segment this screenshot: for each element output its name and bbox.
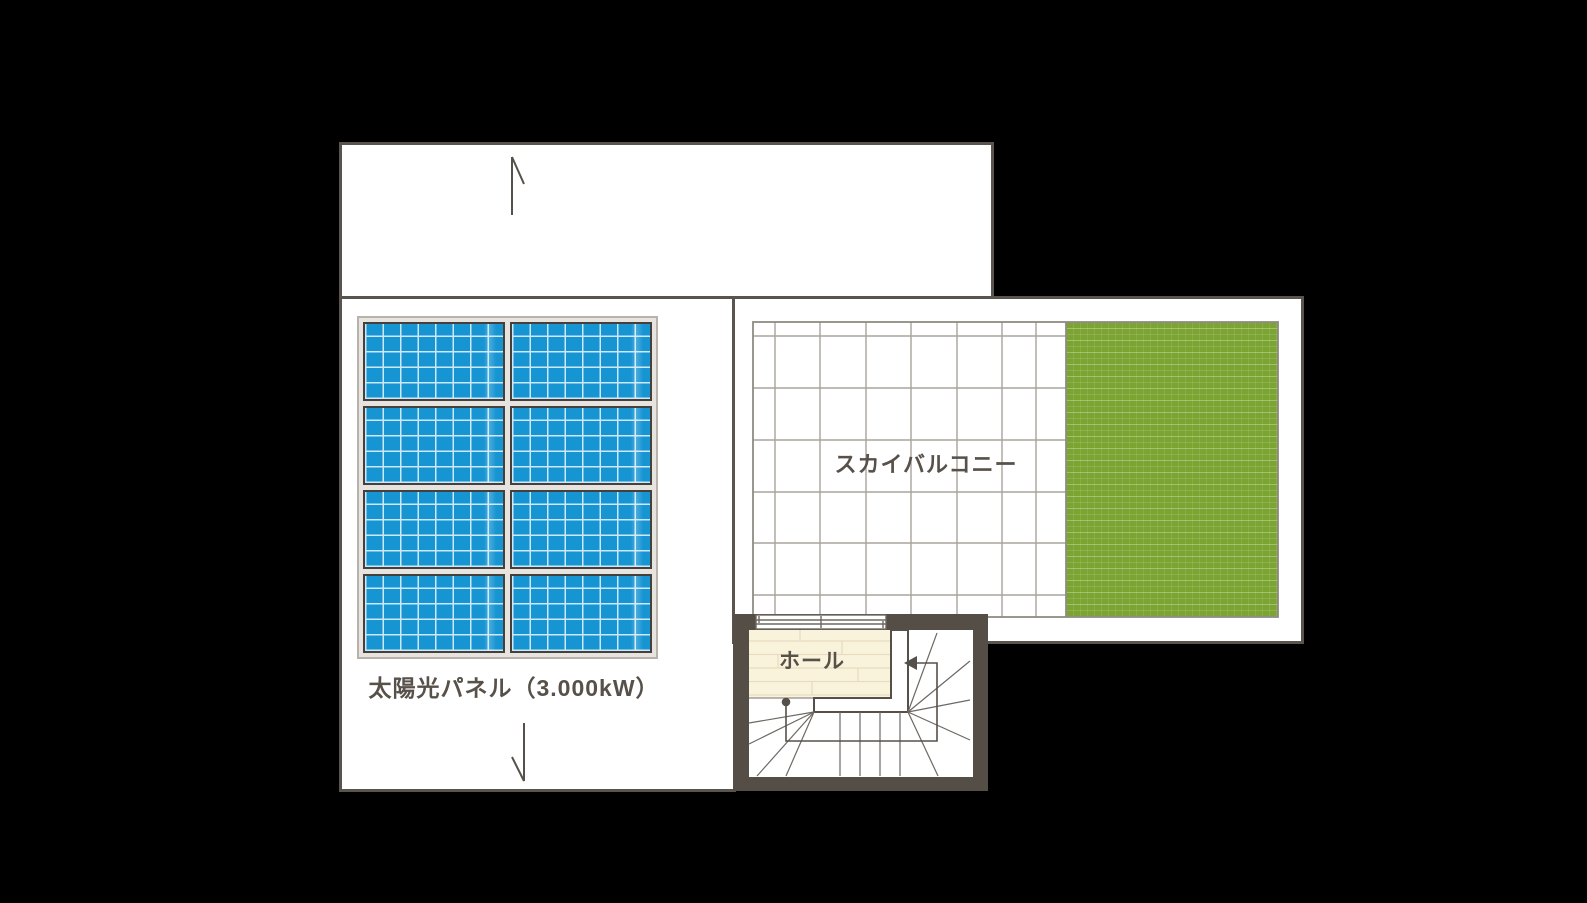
solar-panel bbox=[510, 406, 652, 485]
solar-panel bbox=[363, 574, 505, 653]
solar-panel-grid bbox=[357, 316, 658, 659]
solar-panel-label: 太陽光パネル（3.000kW） bbox=[368, 669, 659, 703]
stair-winders-right bbox=[908, 633, 970, 776]
artificial-turf bbox=[1066, 322, 1278, 617]
sky-balcony-label: スカイバルコニー bbox=[834, 447, 1017, 479]
solar-panel bbox=[363, 490, 505, 569]
solar-panel bbox=[510, 490, 652, 569]
solar-panel bbox=[363, 406, 505, 485]
solar-panel bbox=[363, 322, 505, 401]
solar-panel bbox=[510, 322, 652, 401]
stair-treads-lower bbox=[840, 712, 900, 776]
upper-roof-area bbox=[339, 142, 994, 299]
rooftop-floor-plan: 太陽光パネル（3.000kW） スカイバルコニー ホール bbox=[0, 0, 1587, 903]
solar-panel bbox=[510, 574, 652, 653]
stair-winders-left bbox=[749, 712, 814, 776]
hall-label: ホール bbox=[779, 645, 845, 675]
